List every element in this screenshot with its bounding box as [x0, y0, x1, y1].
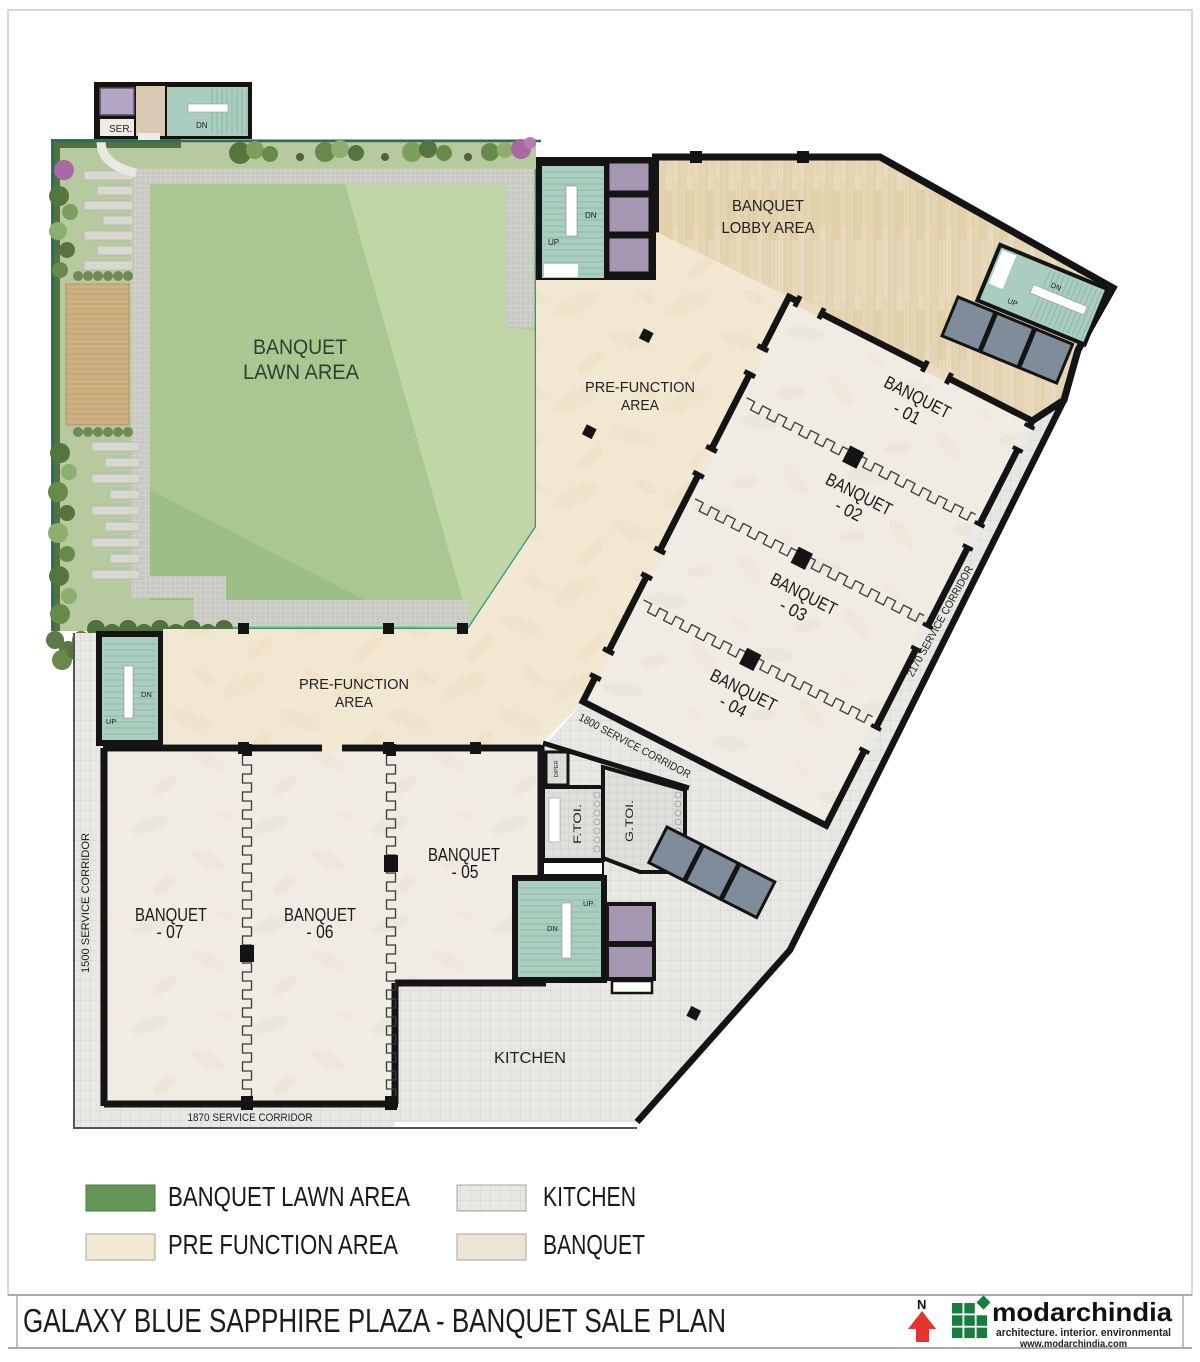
svg-text:modarchindia: modarchindia [992, 1297, 1173, 1327]
svg-text:SER.: SER. [109, 124, 132, 135]
svg-text:BANQUET: BANQUET [253, 336, 347, 359]
svg-text:N: N [917, 1297, 926, 1312]
svg-text:DN: DN [196, 121, 208, 130]
svg-text:- 05: - 05 [452, 862, 479, 882]
svg-text:DN: DN [585, 211, 597, 220]
svg-text:- 06: - 06 [307, 922, 334, 942]
svg-text:- 07: - 07 [157, 922, 184, 942]
svg-text:LOBBY AREA: LOBBY AREA [722, 220, 816, 237]
svg-text:1870 SERVICE CORRIDOR: 1870 SERVICE CORRIDOR [188, 1112, 313, 1124]
svg-text:www.modarchindia.com: www.modarchindia.com [1019, 1338, 1127, 1350]
svg-text:DN: DN [547, 924, 558, 933]
svg-text:PRE-FUNCTION: PRE-FUNCTION [585, 380, 695, 396]
svg-text:BANQUET LAWN AREA: BANQUET LAWN AREA [168, 1181, 410, 1212]
svg-text:GALAXY BLUE SAPPHIRE PLAZA - B: GALAXY BLUE SAPPHIRE PLAZA - BANQUET SAL… [23, 1302, 726, 1339]
svg-text:KITCHEN: KITCHEN [494, 1050, 566, 1067]
svg-text:AREA: AREA [335, 695, 373, 711]
svg-text:BANQUET: BANQUET [732, 198, 805, 215]
svg-text:PRE-FUNCTION: PRE-FUNCTION [299, 677, 409, 693]
svg-text:DN: DN [141, 690, 152, 699]
svg-text:UP·: UP· [583, 899, 596, 908]
svg-text:LAWN AREA: LAWN AREA [243, 361, 359, 384]
svg-text:UP: UP [106, 717, 116, 726]
svg-text:PRE FUNCTION AREA: PRE FUNCTION AREA [168, 1229, 398, 1260]
svg-text:F.TOI.: F.TOI. [572, 804, 584, 844]
svg-text:AREA: AREA [621, 398, 659, 414]
svg-text:G.TOI.: G.TOI. [624, 800, 636, 842]
svg-text:DIPER: DIPER [554, 761, 560, 778]
svg-text:1500 SERVICE CORRIDOR: 1500 SERVICE CORRIDOR [80, 833, 92, 973]
svg-text:UP: UP [548, 238, 559, 247]
svg-text:KITCHEN: KITCHEN [543, 1181, 636, 1212]
svg-text:BANQUET: BANQUET [543, 1229, 645, 1260]
